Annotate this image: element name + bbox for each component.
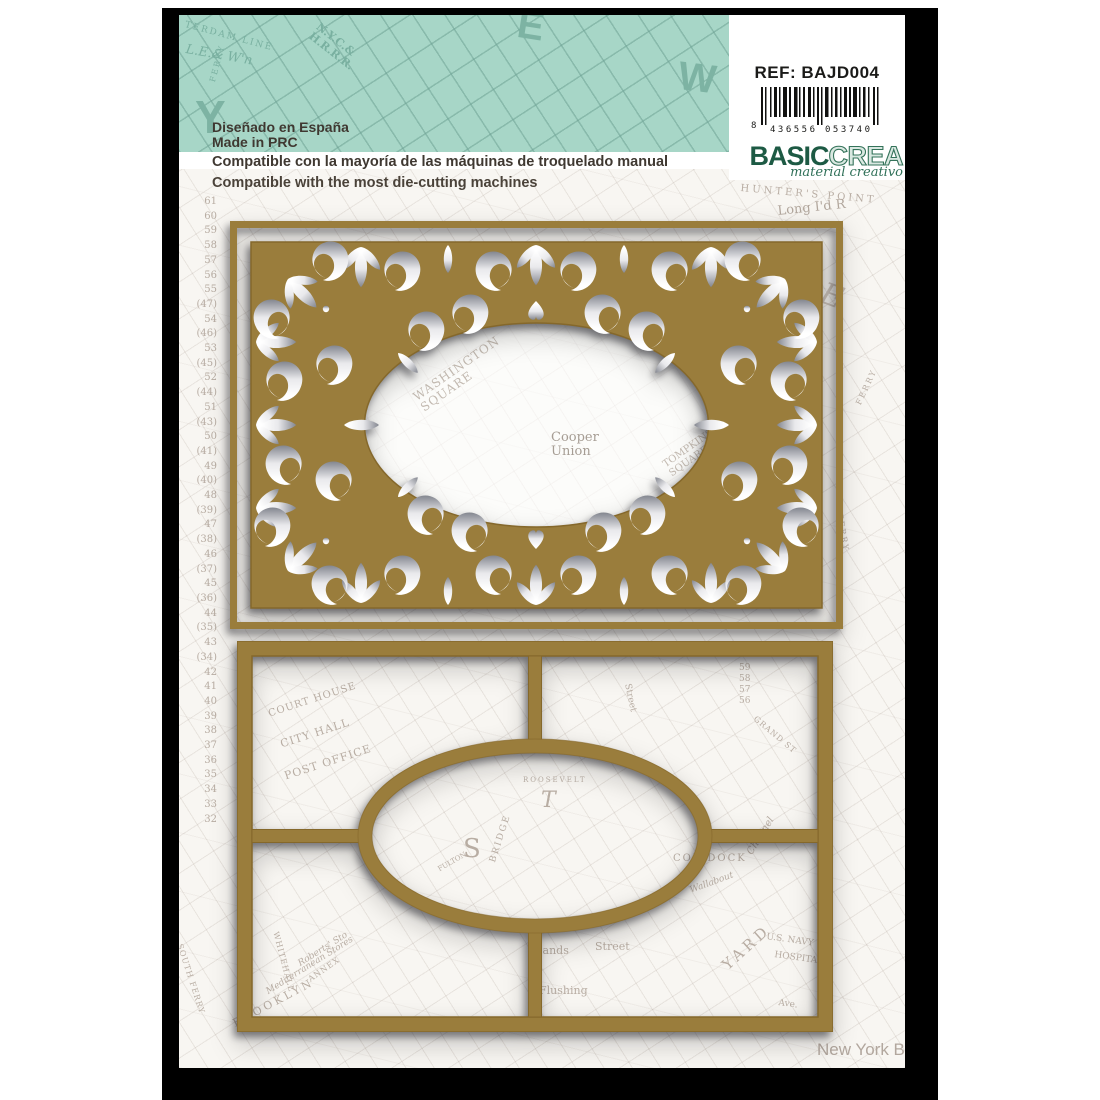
map-label: New York B — [817, 1041, 905, 1060]
map-label: W — [676, 55, 719, 101]
die-bar-right — [706, 830, 818, 843]
compatibility-text-es: Compatible con la mayoría de las máquina… — [212, 154, 668, 170]
product-backing-page: 61 60 59 58 57 56 55 (47) 54 (46) 53 (45… — [179, 15, 905, 1068]
ornate-frame-die — [230, 221, 843, 629]
product-photo-canvas: 61 60 59 58 57 56 55 (47) 54 (46) 53 (45… — [0, 0, 1100, 1100]
brand-logo: BASICCREA material creativo — [729, 141, 905, 180]
barcode: 8 436556 053740 — [751, 87, 891, 133]
svg-text:053740: 053740 — [825, 125, 873, 133]
die-oval-ring — [365, 746, 705, 926]
die-bar-left — [252, 830, 364, 843]
die-plate — [251, 242, 822, 608]
map-label: 61 60 59 58 57 56 55 (47) 54 (46) 53 (45… — [183, 195, 217, 827]
black-backing-card: 61 60 59 58 57 56 55 (47) 54 (46) 53 (45… — [162, 8, 938, 1100]
svg-text:8: 8 — [751, 121, 759, 131]
origin-text: Diseñado en España Made in PRC — [212, 120, 349, 150]
svg-text:436556: 436556 — [770, 125, 818, 133]
die-bar-bottom — [529, 925, 542, 1017]
die-bar-top — [529, 656, 542, 748]
window-frame-die — [237, 641, 833, 1032]
ref-code: REF: BAJD004 — [729, 63, 905, 83]
compatibility-text-en: Compatible with the most die-cutting mac… — [212, 175, 537, 191]
